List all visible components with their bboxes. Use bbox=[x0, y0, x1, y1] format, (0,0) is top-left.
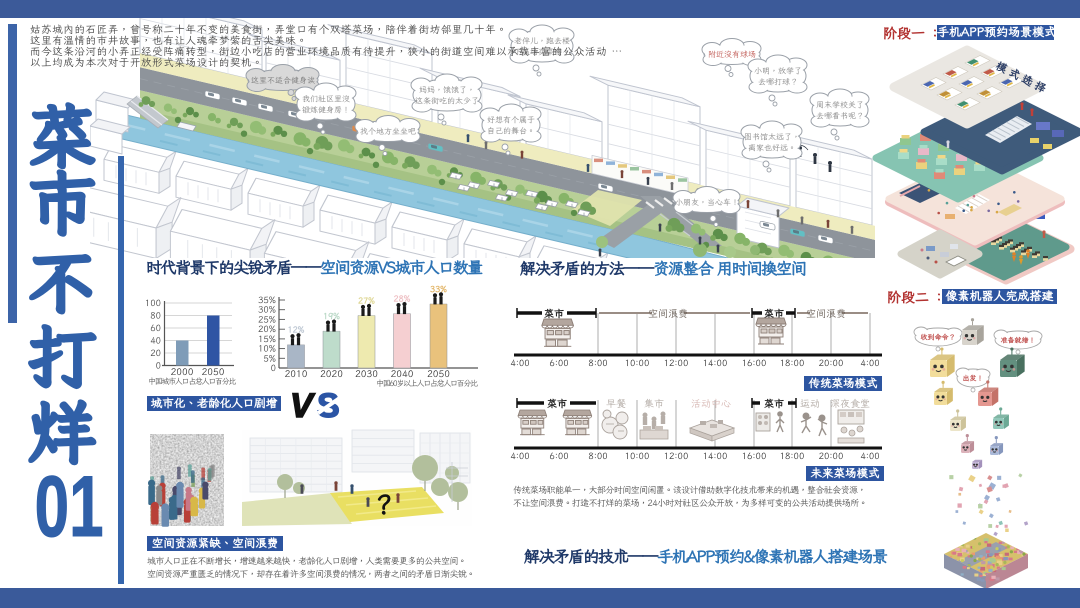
svg-text:8:00: 8:00 bbox=[588, 357, 607, 369]
svg-text:这条街吃的太少了: 这条街吃的太少了 bbox=[415, 97, 479, 107]
svg-text:出发！: 出发！ bbox=[963, 374, 984, 383]
svg-text:20:00: 20:00 bbox=[819, 450, 844, 462]
svg-text:2030: 2030 bbox=[355, 367, 378, 380]
svg-text:菜市: 菜市 bbox=[764, 397, 784, 410]
svg-text:小朋友，当心车！: 小朋友，当心车！ bbox=[675, 198, 739, 208]
svg-text:离家也好远。: 离家也好远。 bbox=[748, 144, 796, 154]
svg-text:空间浪费: 空间浪费 bbox=[648, 307, 688, 320]
svg-text:18:00: 18:00 bbox=[780, 450, 805, 462]
svg-text:4:00: 4:00 bbox=[860, 450, 879, 462]
svg-text:0: 0 bbox=[156, 360, 161, 372]
svg-text:19%: 19% bbox=[323, 311, 340, 322]
svg-text:6:00: 6:00 bbox=[549, 357, 568, 369]
svg-text:深夜食堂: 深夜食堂 bbox=[830, 397, 870, 410]
svg-text:4:00: 4:00 bbox=[510, 450, 529, 462]
svg-text:16:00: 16:00 bbox=[742, 450, 767, 462]
svg-text:16:00: 16:00 bbox=[742, 357, 767, 369]
svg-text:图书馆太远了，: 图书馆太远了， bbox=[744, 133, 800, 143]
svg-text:这里不适合健身诶: 这里不适合健身诶 bbox=[251, 76, 315, 86]
svg-text:40: 40 bbox=[150, 335, 161, 347]
svg-text:14:00: 14:00 bbox=[703, 450, 728, 462]
svg-text:准备就绪！: 准备就绪！ bbox=[1001, 336, 1036, 345]
svg-text:10:00: 10:00 bbox=[625, 357, 650, 369]
svg-text:80: 80 bbox=[150, 310, 161, 322]
svg-text:去哪打球？: 去哪打球？ bbox=[758, 78, 798, 88]
svg-text:0: 0 bbox=[271, 362, 276, 374]
svg-text:12:00: 12:00 bbox=[664, 450, 689, 462]
svg-text:2010: 2010 bbox=[285, 367, 308, 380]
svg-text:我们社区里没: 我们社区里没 bbox=[302, 95, 350, 105]
svg-text:12%: 12% bbox=[287, 325, 304, 336]
svg-text:附近没有球场: 附近没有球场 bbox=[708, 50, 756, 60]
svg-text:自己的舞台。: 自己的舞台。 bbox=[487, 127, 535, 137]
svg-text:运动: 运动 bbox=[800, 397, 820, 410]
svg-text:20:00: 20:00 bbox=[819, 357, 844, 369]
svg-text:集市: 集市 bbox=[644, 397, 664, 410]
svg-text:18:00: 18:00 bbox=[780, 357, 805, 369]
svg-text:去哪看书呢？: 去哪看书呢？ bbox=[816, 112, 864, 122]
svg-text:33%: 33% bbox=[430, 284, 447, 295]
svg-text:60: 60 bbox=[150, 322, 161, 334]
svg-text:好想有个属于: 好想有个属于 bbox=[487, 116, 535, 126]
svg-text:8:00: 8:00 bbox=[588, 450, 607, 462]
svg-text:早餐: 早餐 bbox=[606, 397, 626, 410]
svg-text:找个地方坐坐吧: 找个地方坐坐吧 bbox=[360, 127, 416, 137]
svg-text:20: 20 bbox=[150, 347, 161, 359]
svg-text:100: 100 bbox=[145, 297, 161, 309]
svg-text:2020: 2020 bbox=[320, 367, 343, 380]
svg-text:?: ? bbox=[376, 486, 392, 522]
svg-text:菜市: 菜市 bbox=[547, 397, 567, 410]
svg-text:小明，放学了: 小明，放学了 bbox=[754, 67, 802, 77]
svg-text:空间浪费: 空间浪费 bbox=[806, 307, 846, 320]
svg-text:活动中心: 活动中心 bbox=[691, 397, 731, 410]
svg-text:28%: 28% bbox=[393, 294, 410, 305]
svg-text:妈妈，饿饿了，: 妈妈，饿饿了， bbox=[419, 86, 475, 96]
svg-text:27%: 27% bbox=[358, 296, 375, 307]
svg-text:12:00: 12:00 bbox=[664, 357, 689, 369]
svg-text:周末学校关了: 周末学校关了 bbox=[816, 101, 864, 111]
svg-text:4:00: 4:00 bbox=[510, 357, 529, 369]
svg-text:14:00: 14:00 bbox=[703, 357, 728, 369]
svg-text:收到命令？: 收到命令？ bbox=[921, 333, 956, 342]
svg-text:6:00: 6:00 bbox=[549, 450, 568, 462]
svg-text:10:00: 10:00 bbox=[625, 450, 650, 462]
svg-text:锻炼健身房！: 锻炼健身房！ bbox=[302, 106, 350, 116]
svg-text:菜市: 菜市 bbox=[544, 307, 564, 320]
svg-text:4:00: 4:00 bbox=[860, 357, 879, 369]
